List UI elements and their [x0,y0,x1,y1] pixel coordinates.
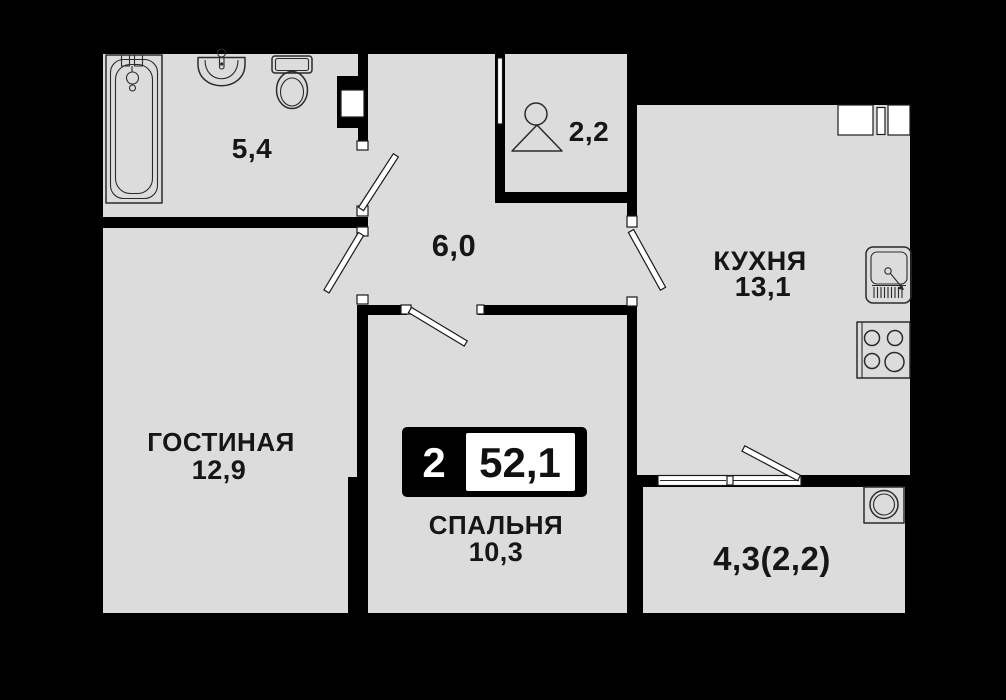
living-name-label: ГОСТИНАЯ [147,427,295,457]
wall-kitchen-hall-upper [627,54,637,225]
kitchen-area-label: 13,1 [735,271,792,302]
wall-living-pilaster [348,477,357,613]
hinge-kitchen-bottom [627,297,637,306]
wall-wardrobe-bottom [495,192,633,203]
balcony-window-tick [727,476,733,485]
bedroom-area-label: 10,3 [469,537,524,567]
badge-rooms-count: 2 [422,439,445,486]
wall-bedroom-top-right [478,305,637,315]
hinge-bath-top [357,141,368,150]
hallway-area-label: 6,0 [432,228,477,263]
kitchen-vent-box-1 [838,105,873,135]
living-area-label: 12,9 [192,455,247,485]
wall-balcony-left [627,475,643,613]
badge-total-area: 52,1 [479,439,561,486]
kitchen-vent-box-3 [888,105,910,135]
apartment-badge: 2 52,1 [402,427,587,497]
floor-plan: 5,4 6,0 2,2 КУХНЯ 13,1 ГОСТИНАЯ 12,9 СПА… [0,0,1006,700]
vent-shaft-cell [341,90,364,117]
kitchen-vent-box-2 [877,108,885,135]
room-living-floor [103,228,357,613]
wall-bathroom-bottom [103,217,368,228]
wardrobe-wall-slot [498,58,503,124]
bathroom-area-label: 5,4 [232,133,272,164]
bedroom-name-label: СПАЛЬНЯ [429,510,563,540]
room-hallway-floor-2 [495,203,627,305]
wall-kitchen-hall-lower [627,298,637,475]
wall-living-bedroom [357,305,368,613]
floor-plan-canvas: 5,4 6,0 2,2 КУХНЯ 13,1 ГОСТИНАЯ 12,9 СПА… [0,0,1006,700]
hinge-living-bottom [357,295,368,304]
hinge-kitchen-top [627,216,637,227]
wardrobe-area-label: 2,2 [569,116,609,147]
balcony-area-label: 4,3(2,2) [713,540,831,577]
hinge-bedroom-right [477,305,484,314]
